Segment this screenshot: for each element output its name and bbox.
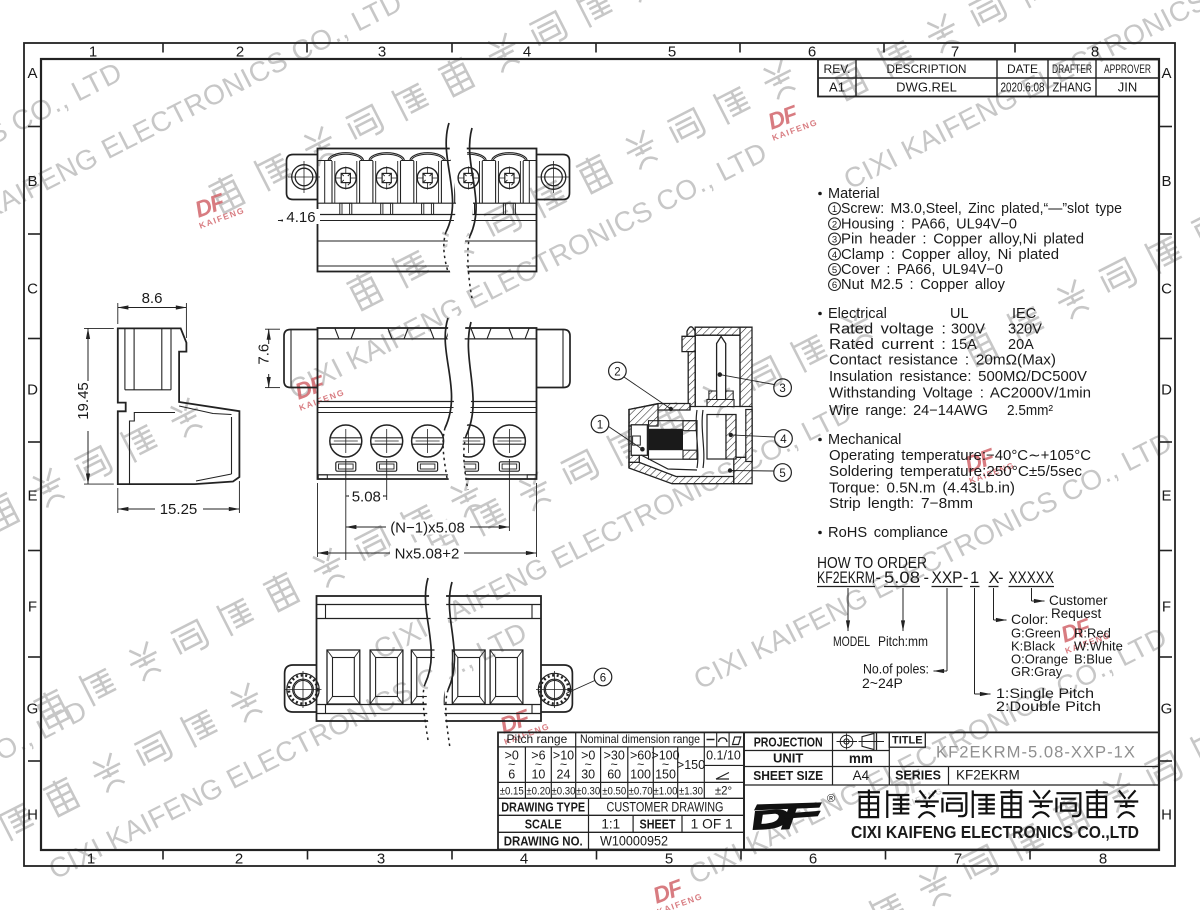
svg-text:2: 2 [235, 851, 243, 868]
svg-text:5: 5 [665, 851, 673, 868]
svg-text:4: 4 [520, 851, 528, 868]
svg-text:DRAWING NO.: DRAWING NO. [504, 835, 583, 849]
svg-text:CIXI KAIFENG ELECTRONICS CO.,L: CIXI KAIFENG ELECTRONICS CO.,LTD [851, 822, 1139, 842]
svg-text:B: B [1161, 173, 1171, 190]
svg-text:ZHANG: ZHANG [1053, 80, 1092, 95]
svg-text:Electrical: Electrical [828, 306, 887, 322]
svg-text:UL: UL [950, 306, 969, 322]
svg-text:H: H [1161, 807, 1172, 824]
svg-text:2: 2 [614, 366, 620, 378]
svg-text:JIN: JIN [1118, 80, 1138, 95]
svg-text:2020.6.08: 2020.6.08 [1001, 80, 1045, 95]
svg-text:>150: >150 [677, 758, 705, 772]
svg-text:W10000952: W10000952 [600, 834, 668, 849]
svg-text:320V: 320V [1008, 321, 1042, 337]
svg-text:Cover : PA66, UL94V−0: Cover : PA66, UL94V−0 [841, 262, 1003, 278]
svg-text:6: 6 [808, 44, 816, 61]
svg-text:1:1: 1:1 [601, 817, 620, 832]
svg-text:Contact resistance : 20mΩ(M: Contact resistance : 20mΩ(Max) [829, 353, 1056, 369]
svg-text:±1.00: ±1.00 [654, 786, 678, 798]
svg-text:5: 5 [832, 265, 837, 276]
svg-text:SERIES: SERIES [895, 769, 941, 783]
svg-text:15A: 15A [951, 337, 977, 353]
svg-text:(N−1)x5.08: (N−1)x5.08 [390, 520, 465, 537]
svg-text:0.1/10: 0.1/10 [706, 749, 741, 763]
svg-text:F: F [28, 599, 37, 616]
svg-text:3: 3 [378, 44, 386, 61]
svg-text:1: 1 [597, 419, 603, 431]
svg-text:E: E [1161, 488, 1171, 505]
svg-text:Pitch range: Pitch range [507, 732, 568, 746]
svg-text:4: 4 [523, 44, 531, 61]
svg-text:XXP: XXP [932, 569, 963, 587]
svg-text:E: E [27, 488, 37, 505]
svg-text:-: - [963, 569, 969, 587]
svg-text:1 OF 1: 1 OF 1 [691, 817, 733, 832]
svg-text:Pin header : Copper alloy,: Pin header : Copper alloy,Ni plated [841, 232, 1084, 248]
svg-text:Nut M2.5 : Copper alloy: Nut M2.5 : Copper alloy [841, 277, 1006, 293]
svg-text:1: 1 [89, 44, 97, 61]
svg-text:Operating temperature:−40°C∼+: Operating temperature:−40°C∼+105°C [829, 448, 1091, 464]
svg-text:A: A [27, 65, 37, 82]
svg-text:CIXI KAIFENG ELECTRONICS CO: CIXI KAIFENG ELECTRONICS CO., LTD [0, 694, 92, 910]
svg-text:15.25: 15.25 [160, 501, 198, 518]
svg-text:Strip length: 7−8mm: Strip length: 7−8mm [829, 496, 973, 512]
svg-text:G: G [27, 701, 39, 718]
svg-text:-: - [924, 569, 930, 587]
svg-text:2.5mm²: 2.5mm² [1007, 403, 1053, 419]
svg-text:-: - [998, 569, 1004, 587]
svg-text:4: 4 [832, 250, 837, 261]
svg-text:±0.30: ±0.30 [576, 786, 600, 798]
svg-text:6: 6 [508, 768, 515, 782]
svg-text:Rated current :: Rated current : [829, 337, 946, 353]
svg-text:A4: A4 [853, 768, 870, 783]
svg-text:CIXI KAIFENG ELECTRONICS CO: CIXI KAIFENG ELECTRONICS CO., LTD [44, 616, 533, 885]
svg-text:-: - [876, 569, 882, 587]
svg-text:Screw: M3.0,Steel, Zinc pla: Screw: M3.0,Steel, Zinc plated,“—”slot t… [841, 201, 1122, 217]
svg-text:B: B [27, 173, 37, 190]
svg-text:REV.: REV. [824, 62, 851, 76]
svg-text:SCALE: SCALE [525, 818, 562, 832]
svg-text:1: 1 [87, 851, 95, 868]
svg-text:G: G [1161, 701, 1173, 718]
svg-text:100: 100 [630, 768, 651, 782]
svg-text:Pitch:mm: Pitch:mm [878, 633, 928, 649]
svg-text:MODEL: MODEL [833, 633, 870, 649]
svg-text:10: 10 [531, 768, 545, 782]
svg-text:5: 5 [779, 468, 785, 480]
svg-text:GR:Gray: GR:Gray [1011, 664, 1063, 679]
svg-text:Clamp : Copper alloy, Ni: Clamp : Copper alloy, Ni plated [841, 247, 1059, 263]
svg-text:RoHS compliance: RoHS compliance [828, 525, 948, 541]
svg-text:DATE: DATE [1007, 62, 1038, 76]
svg-text:6: 6 [809, 851, 817, 868]
svg-text:1: 1 [832, 204, 837, 215]
svg-text:Soldering temperature:250°C±5: Soldering temperature:250°C±5/5sec [829, 464, 1082, 480]
svg-text:DRAFTER: DRAFTER [1052, 62, 1092, 76]
svg-text:2: 2 [832, 219, 837, 230]
svg-text:3: 3 [377, 851, 385, 868]
svg-text:2~24P: 2~24P [862, 675, 903, 691]
svg-text:6: 6 [832, 280, 837, 291]
svg-text:1: 1 [970, 569, 979, 587]
svg-text:30: 30 [581, 768, 595, 782]
svg-text:TITLE: TITLE [892, 735, 923, 747]
svg-text:DRAWING TYPE: DRAWING TYPE [501, 801, 585, 815]
svg-text:2: 2 [236, 44, 244, 61]
svg-text:KF2EKRM: KF2EKRM [956, 768, 1020, 783]
svg-text:Rated voltage :: Rated voltage : [829, 321, 946, 337]
svg-text:±2°: ±2° [715, 786, 732, 798]
svg-text:C: C [1161, 281, 1172, 298]
svg-text:20A: 20A [1008, 337, 1034, 353]
svg-text:IEC: IEC [1012, 306, 1036, 322]
svg-text:APPROVER: APPROVER [1104, 62, 1151, 76]
svg-text:19.45: 19.45 [75, 382, 92, 420]
svg-text:®: ® [827, 793, 835, 805]
svg-text:8: 8 [1091, 44, 1099, 61]
svg-text:Mechanical: Mechanical [828, 432, 901, 448]
svg-text:2:Double Pitch: 2:Double Pitch [996, 699, 1101, 714]
svg-text:PROJECTION: PROJECTION [754, 736, 823, 750]
svg-text:24: 24 [557, 768, 571, 782]
svg-text:XXXXX: XXXXX [1009, 569, 1055, 587]
svg-text:3: 3 [779, 383, 785, 395]
svg-text:4.16: 4.16 [286, 209, 315, 226]
svg-text:300V: 300V [951, 321, 985, 337]
svg-text:±0.20: ±0.20 [526, 786, 550, 798]
svg-text:KF2EKRM: KF2EKRM [817, 569, 875, 587]
svg-text:mm: mm [849, 751, 873, 766]
svg-text:KF2EKRM-5.08-XXP-1X: KF2EKRM-5.08-XXP-1X [936, 744, 1136, 762]
svg-text:D: D [27, 382, 38, 399]
svg-text:Nominal dimension range: Nominal dimension range [580, 732, 700, 746]
svg-text:Withstanding Voltage : AC20: Withstanding Voltage : AC2000V/1min [829, 385, 1091, 401]
svg-text:±0.70: ±0.70 [629, 786, 653, 798]
svg-text:C: C [27, 281, 38, 298]
svg-text:8: 8 [1099, 851, 1107, 868]
svg-text:±0.15: ±0.15 [500, 786, 524, 798]
svg-text:3: 3 [832, 235, 837, 246]
svg-text:7.6: 7.6 [256, 344, 273, 365]
svg-text:6: 6 [600, 672, 606, 684]
svg-text:SHEET: SHEET [640, 818, 676, 832]
svg-text:8.6: 8.6 [142, 290, 163, 307]
svg-text:UNIT: UNIT [773, 751, 803, 766]
svg-text:±0.30: ±0.30 [552, 786, 576, 798]
svg-text:5: 5 [668, 44, 676, 61]
svg-text:60: 60 [607, 768, 621, 782]
svg-text:F: F [1162, 599, 1171, 616]
svg-text:DESCRIPTION: DESCRIPTION [887, 62, 967, 76]
svg-text:7: 7 [951, 44, 959, 61]
svg-text:CUSTOMER DRAWING: CUSTOMER DRAWING [607, 800, 724, 815]
svg-text:SHEET SIZE: SHEET SIZE [753, 769, 823, 783]
svg-text:A1: A1 [829, 80, 845, 95]
svg-text:B:Blue: B:Blue [1074, 652, 1112, 667]
svg-text:D: D [1161, 382, 1172, 399]
svg-text:5.08: 5.08 [352, 489, 381, 506]
svg-text:Insulation resistance: 500MΩ: Insulation resistance: 500MΩ/DC500V [829, 369, 1087, 385]
svg-text:H: H [27, 807, 38, 824]
svg-text:CIXI KAIFENG ELECTRONICS CO: CIXI KAIFENG ELECTRONICS CO., LTD [839, 0, 1200, 195]
svg-text:A: A [1161, 65, 1171, 82]
svg-text:4: 4 [780, 434, 787, 446]
svg-text:Request: Request [1051, 606, 1102, 621]
svg-text:±0.50: ±0.50 [602, 786, 626, 798]
svg-text:Material: Material [828, 186, 880, 202]
svg-text:150: 150 [655, 768, 676, 782]
svg-text:DWG.REL: DWG.REL [896, 80, 957, 95]
svg-text:7: 7 [954, 851, 962, 868]
svg-text:Wire range: 24−14AWG: Wire range: 24−14AWG [829, 403, 988, 419]
svg-text:Housing : PA66, UL94V−0: Housing : PA66, UL94V−0 [841, 216, 1017, 232]
svg-text:Nx5.08+2: Nx5.08+2 [395, 546, 460, 563]
svg-text:Torque: 0.5N.m (4.43Lb.in): Torque: 0.5N.m (4.43Lb.in) [829, 481, 1015, 497]
svg-text:5.08: 5.08 [884, 569, 920, 587]
svg-text:±1.30: ±1.30 [679, 786, 703, 798]
